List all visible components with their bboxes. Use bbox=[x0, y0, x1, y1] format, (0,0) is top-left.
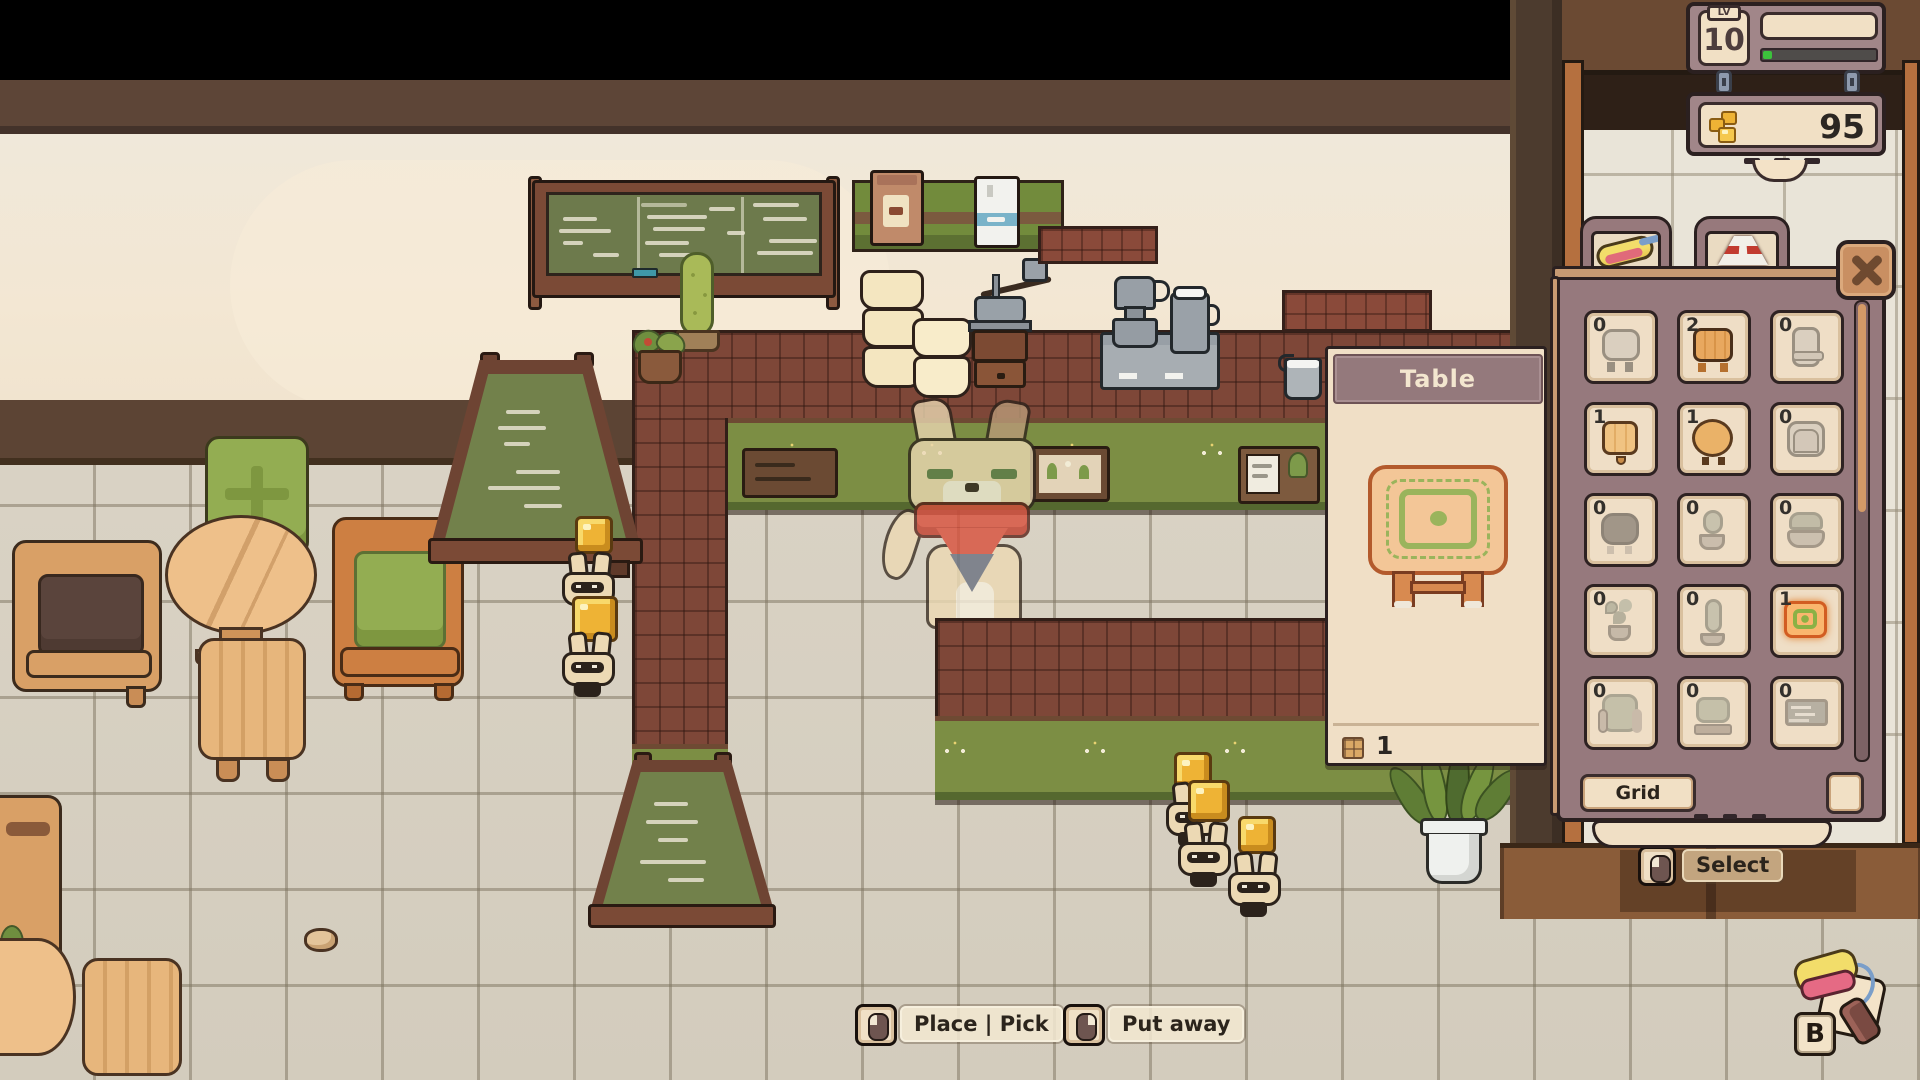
corner-table-partial[interactable] bbox=[0, 938, 76, 1056]
level-value: 10 bbox=[1701, 21, 1747, 61]
slot-count: 1 bbox=[1686, 406, 1699, 428]
currency-field: 95 bbox=[1698, 102, 1878, 148]
panel-feet-dashes bbox=[1694, 814, 1708, 819]
item-info-title: Table bbox=[1333, 354, 1543, 404]
level-panel: LV 10 bbox=[1686, 2, 1886, 74]
milk-canister bbox=[1170, 292, 1210, 354]
fox-head bbox=[908, 438, 1036, 512]
inventory-scrollbar-thumb[interactable] bbox=[1858, 304, 1866, 512]
slot-count: 1 bbox=[1779, 588, 1792, 610]
moka-pot-top bbox=[1114, 276, 1156, 310]
build-keybind-badge: B bbox=[1794, 1012, 1836, 1056]
grid-toggle-checkbox[interactable] bbox=[1826, 772, 1864, 814]
slot-count: 0 bbox=[1686, 680, 1699, 702]
item-stock-count: 1 bbox=[1376, 731, 1436, 761]
brown-armchair[interactable] bbox=[8, 522, 166, 710]
slot-count: 0 bbox=[1593, 588, 1606, 610]
currency-panel: 95 bbox=[1686, 92, 1886, 156]
bunny-eyes bbox=[571, 662, 604, 673]
mouse-right-click-icon bbox=[1063, 1004, 1105, 1046]
gold-cube[interactable] bbox=[575, 516, 613, 554]
milk-canister-handle bbox=[1208, 304, 1220, 326]
mouse-left-click-icon bbox=[855, 1004, 897, 1046]
counter-menu-board-1 bbox=[742, 448, 838, 498]
slot-count: 0 bbox=[1593, 497, 1606, 519]
bunny-body bbox=[574, 682, 601, 697]
moka-pot-handle bbox=[1154, 280, 1170, 302]
crate-count-icon bbox=[1342, 737, 1364, 759]
grinder-body bbox=[972, 330, 1028, 362]
select-hint-label: Select bbox=[1682, 849, 1783, 882]
xp-bar-track bbox=[1760, 12, 1878, 40]
inventory-slot-armchair[interactable]: 0 bbox=[1770, 402, 1844, 476]
backroom-door-frame-right bbox=[1902, 60, 1920, 845]
chain-link-icon bbox=[1716, 70, 1732, 94]
counter-shelf-nook bbox=[1238, 446, 1320, 504]
inventory-panel-stand bbox=[1592, 820, 1832, 848]
inventory-slot-pouf[interactable]: 0 bbox=[1584, 493, 1658, 567]
bunny-eyes bbox=[1187, 852, 1220, 863]
inventory-close-button[interactable] bbox=[1836, 240, 1896, 300]
fox-nose bbox=[965, 483, 979, 492]
inventory-slot-sign-board[interactable]: 0 bbox=[1770, 676, 1844, 750]
item-info-panel: Table 1 bbox=[1325, 346, 1547, 766]
counter-hutch bbox=[1282, 290, 1432, 332]
milk-carton bbox=[974, 176, 1020, 248]
fox-eye-right bbox=[991, 469, 1017, 479]
inventory-slot-green-armchair[interactable]: 0 bbox=[1584, 676, 1658, 750]
chalk-divider-2 bbox=[741, 197, 744, 273]
chalk-eraser bbox=[632, 268, 658, 278]
espresso-station[interactable] bbox=[1100, 276, 1222, 394]
panel-left-rail bbox=[1550, 276, 1560, 816]
counter-left-leg[interactable] bbox=[632, 418, 728, 748]
currency-value: 95 bbox=[1775, 107, 1865, 147]
inventory-grid: 020110000001000 bbox=[1560, 270, 1882, 818]
a-frame-sign-lower[interactable] bbox=[588, 760, 776, 938]
inventory-slot-bench[interactable]: 2 bbox=[1677, 310, 1751, 384]
place-pick-hint-label: Place | Pick bbox=[900, 1006, 1063, 1042]
milk-canister-lid bbox=[1173, 286, 1207, 300]
bunny-eyes bbox=[571, 582, 604, 593]
info-panel-divider bbox=[1333, 723, 1539, 726]
level-label: LV bbox=[1707, 5, 1741, 21]
inventory-slot-leaf-plant[interactable]: 0 bbox=[1584, 584, 1658, 658]
inventory-slot-stool[interactable]: 0 bbox=[1584, 310, 1658, 384]
moka-pot-base bbox=[1112, 318, 1158, 348]
inventory-scrollbar-track[interactable] bbox=[1854, 300, 1870, 762]
sign-tab-icon bbox=[1716, 236, 1772, 266]
slot-count: 0 bbox=[1779, 406, 1792, 428]
bunny-customer[interactable] bbox=[562, 632, 618, 700]
inventory-slot-round-table[interactable]: 1 bbox=[1677, 402, 1751, 476]
sign-base-bar bbox=[588, 904, 776, 928]
gold-cube[interactable] bbox=[1238, 816, 1276, 854]
bottom-stool-partial[interactable] bbox=[82, 958, 184, 1080]
slot-count: 0 bbox=[1593, 680, 1606, 702]
slot-count: 0 bbox=[1686, 497, 1699, 519]
put-away-hint-label: Put away bbox=[1108, 1006, 1244, 1042]
slot-count: 0 bbox=[1779, 314, 1792, 336]
bunny-customer[interactable] bbox=[1178, 822, 1234, 890]
slot-count: 2 bbox=[1686, 314, 1699, 336]
inventory-slot-cactus-pot[interactable]: 0 bbox=[1677, 493, 1751, 567]
inventory-slot-tall-cactus[interactable]: 0 bbox=[1677, 584, 1751, 658]
plant-pot bbox=[1426, 834, 1482, 884]
bunny-body bbox=[1190, 872, 1217, 887]
slot-count: 1 bbox=[1593, 406, 1606, 428]
slot-count: 0 bbox=[1779, 680, 1792, 702]
inventory-slot-green-seat[interactable]: 0 bbox=[1677, 676, 1751, 750]
build-tool-button[interactable]: B bbox=[1790, 954, 1890, 1064]
table-preview-art bbox=[1368, 465, 1508, 617]
inventory-slot-chair-back[interactable]: 0 bbox=[1770, 310, 1844, 384]
xp-progress-bar bbox=[1760, 48, 1878, 62]
slot-count: 0 bbox=[1593, 314, 1606, 336]
game-viewport: Select Table 1 020110000001000 bbox=[0, 0, 1920, 1080]
chain-link-icon bbox=[1844, 70, 1860, 94]
potted-plant[interactable] bbox=[1396, 748, 1512, 888]
wall-top-beam bbox=[0, 78, 1510, 134]
bunny-body bbox=[1240, 902, 1267, 917]
inventory-slot-side-table[interactable]: 1 bbox=[1584, 402, 1658, 476]
gold-cube[interactable] bbox=[1188, 780, 1230, 822]
mouse-left-click-icon bbox=[1638, 846, 1676, 886]
cocoa-carton bbox=[870, 170, 924, 246]
bunny-customer[interactable] bbox=[1228, 852, 1284, 920]
chalk-divider-1 bbox=[637, 197, 640, 273]
coffee-grinder[interactable] bbox=[964, 258, 1050, 398]
wall-mounted-shelf-box bbox=[1038, 226, 1158, 264]
grinder-shaft bbox=[992, 274, 1000, 298]
floor-cookie-item[interactable] bbox=[300, 926, 342, 956]
slot-count: 0 bbox=[1779, 497, 1792, 519]
inventory-slot-plant-bowl[interactable]: 0 bbox=[1770, 493, 1844, 567]
milk-pail bbox=[1284, 352, 1324, 402]
bunny-eyes bbox=[1237, 882, 1270, 893]
xp-progress-fill bbox=[1763, 51, 1772, 59]
fox-barista[interactable] bbox=[898, 396, 1048, 631]
slot-count: 0 bbox=[1686, 588, 1699, 610]
fox-eye-left bbox=[927, 469, 953, 479]
gold-coins-icon bbox=[1709, 111, 1747, 145]
grid-toggle-button[interactable]: Grid Toggle bbox=[1580, 774, 1696, 812]
level-badge: LV 10 bbox=[1698, 10, 1750, 66]
ceiling-dark-band bbox=[0, 0, 1510, 80]
grinder-drawer bbox=[974, 360, 1026, 388]
wooden-stool[interactable] bbox=[198, 638, 308, 786]
inventory-slot-mat-table[interactable]: 1 bbox=[1770, 584, 1844, 658]
inventory-panel: 020110000001000 Grid Toggle bbox=[1556, 266, 1886, 822]
wall-shelf[interactable] bbox=[852, 170, 1064, 254]
